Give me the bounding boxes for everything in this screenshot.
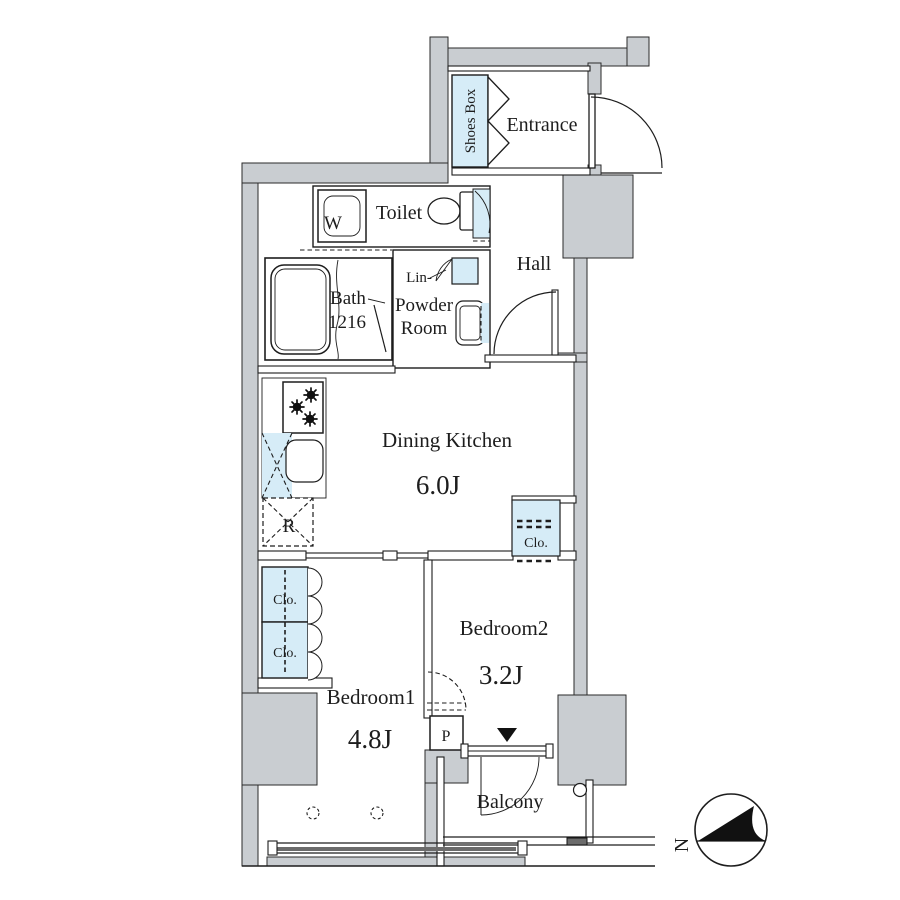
folding-door-arc <box>308 652 322 680</box>
toilet-door-panel <box>473 189 490 238</box>
handle-mark <box>307 807 319 819</box>
hall-door-leaf <box>552 290 558 355</box>
linen-closet <box>452 258 478 284</box>
bath-label: Bath <box>330 288 366 309</box>
entrance-label: Entrance <box>506 114 577 136</box>
powder-room-label2: Room <box>401 318 448 339</box>
folding-door-arc <box>308 624 322 652</box>
bedroom2-label: Bedroom2 <box>460 616 549 640</box>
window-jamb <box>461 744 468 758</box>
wall-segment <box>242 183 258 693</box>
wall-segment <box>627 37 649 66</box>
wall-segment <box>574 258 587 695</box>
pipe-space-label: P <box>442 728 451 745</box>
pillar <box>563 175 633 258</box>
railing-partition <box>567 838 587 845</box>
hall-threshold <box>485 355 576 362</box>
kitchen-sink-icon <box>286 440 323 482</box>
dining-kitchen-area: 6.0J <box>416 470 460 500</box>
door-jamb <box>383 551 397 560</box>
handle-mark <box>371 807 383 819</box>
hall-area <box>494 290 558 355</box>
closet-label: Clo. <box>524 536 548 551</box>
window-jamb <box>518 841 527 855</box>
bathtub-icon <box>271 265 330 354</box>
wall-segment <box>242 785 258 866</box>
bedroom1-area: 4.8J <box>348 724 392 754</box>
window-jamb <box>546 744 553 758</box>
toilet-tank <box>460 192 474 230</box>
entrance-door-arc <box>591 97 662 168</box>
folding-door-arc <box>308 596 322 624</box>
sliding-door-panel <box>306 553 428 558</box>
entrance-door-leaf <box>589 94 595 168</box>
hall-label: Hall <box>517 253 552 275</box>
bath-size-label: 1216 <box>328 312 366 333</box>
wall-segment <box>558 551 576 560</box>
window-jamb <box>268 841 277 855</box>
hall-door-arc <box>494 292 556 354</box>
shoes-box-label: Shoes Box <box>463 88 479 153</box>
wall-segment <box>430 37 448 183</box>
dining-kitchen-label: Dining Kitchen <box>382 428 513 452</box>
window-rail-dark <box>276 847 516 851</box>
wall-segment <box>258 551 306 560</box>
bedroom2-area: 3.2J <box>479 660 523 690</box>
compass-icon: N <box>671 794 767 866</box>
floor-plan-drawing: N Shoes Box Entrance Toilet W Hall Bath … <box>0 0 900 900</box>
entrance-step <box>452 168 590 175</box>
floor-plan: N Shoes Box Entrance Toilet W Hall Bath … <box>0 0 900 900</box>
closet-label: Clo. <box>273 646 297 661</box>
toilet-icon <box>428 198 460 224</box>
vanity-counter <box>481 303 489 343</box>
wall-segment <box>242 693 317 785</box>
bedroom1-label: Bedroom1 <box>327 685 416 709</box>
toilet-label: Toilet <box>376 202 423 224</box>
bedroom2-door-arc <box>428 672 466 710</box>
orientation-triangle-icon <box>497 728 517 742</box>
refrigerator-label: R <box>283 516 296 537</box>
pillar <box>558 695 626 785</box>
washing-machine-label: W <box>324 213 342 234</box>
wall-segment <box>258 366 395 373</box>
closet-label: Clo. <box>273 593 297 608</box>
window-sill <box>267 857 525 866</box>
powder-room-label: Powder <box>395 295 454 316</box>
linen-label: Lin- <box>406 270 432 286</box>
drain-icon <box>574 784 587 797</box>
wall-segment <box>242 163 448 183</box>
wall-segment <box>258 678 332 688</box>
bedroom-divider-wall <box>424 560 432 718</box>
compass-north-label: N <box>671 838 693 852</box>
wall-segment <box>448 66 590 71</box>
balcony-label: Balcony <box>477 791 544 813</box>
wall-segment <box>428 551 513 560</box>
folding-door-arc <box>308 568 322 596</box>
